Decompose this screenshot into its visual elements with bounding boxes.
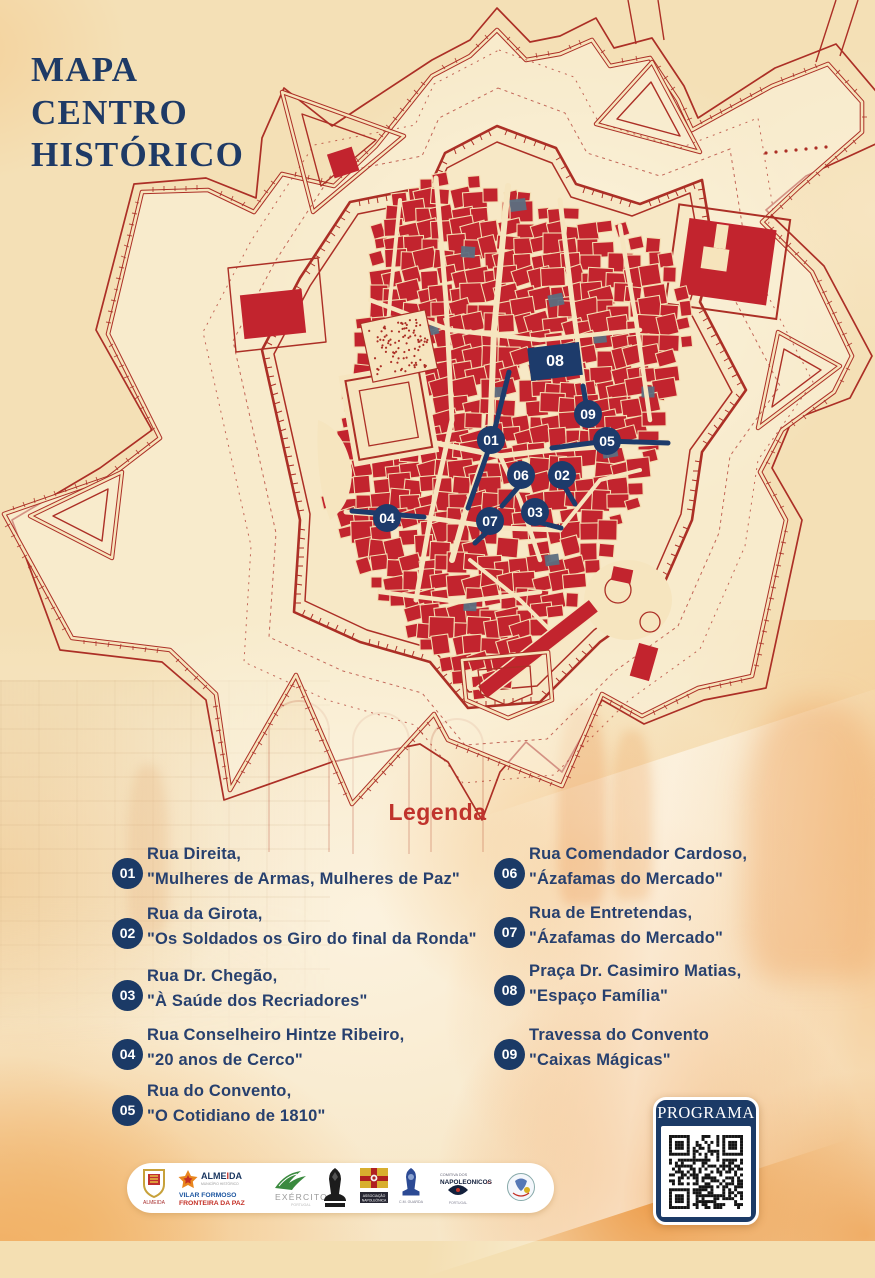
- svg-text:01: 01: [483, 432, 499, 448]
- svg-text:EXÉRCITO: EXÉRCITO: [275, 1192, 328, 1202]
- svg-text:FRONTEIRA DA PAZ: FRONTEIRA DA PAZ: [179, 1200, 245, 1207]
- svg-text:04: 04: [379, 510, 395, 526]
- svg-text:ASSOCIAÇÃO: ASSOCIAÇÃO: [363, 1193, 386, 1198]
- svg-text:02: 02: [554, 467, 570, 483]
- svg-text:PORTUGAL: PORTUGAL: [449, 1201, 468, 1205]
- svg-text:C.M. GUARDA: C.M. GUARDA: [399, 1200, 424, 1204]
- svg-text:MUNICÍPIO HISTÓRICO: MUNICÍPIO HISTÓRICO: [201, 1181, 239, 1186]
- svg-text:07: 07: [482, 513, 498, 529]
- svg-text:COMITIVA DOS: COMITIVA DOS: [440, 1173, 468, 1177]
- svg-text:06: 06: [513, 467, 529, 483]
- svg-text:ALMEIDA: ALMEIDA: [143, 1200, 166, 1206]
- svg-text:VILAR FORMOSO: VILAR FORMOSO: [179, 1192, 236, 1199]
- svg-text:PORTUGAL: PORTUGAL: [291, 1203, 311, 1207]
- svg-text:NAPOLEÓNICA: NAPOLEÓNICA: [362, 1198, 387, 1203]
- svg-text:ALMEIDA: ALMEIDA: [201, 1171, 243, 1181]
- svg-text:08: 08: [546, 353, 564, 370]
- svg-text:05: 05: [599, 433, 615, 449]
- svg-text:03: 03: [527, 504, 543, 520]
- svg-text:PT: PT: [487, 1181, 491, 1185]
- svg-text:09: 09: [580, 406, 596, 422]
- svg-text:NAPOLEONICOS: NAPOLEONICOS: [440, 1179, 493, 1186]
